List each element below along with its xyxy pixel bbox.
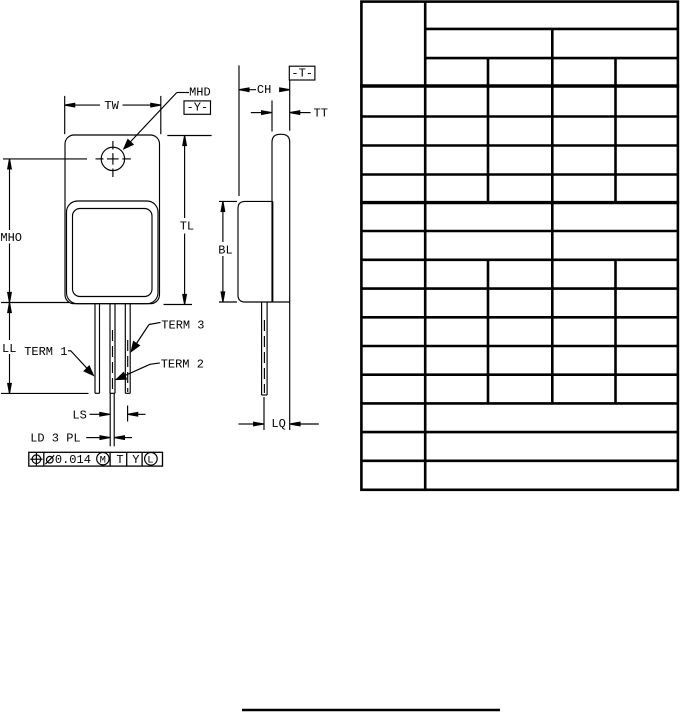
svg-text:MHO: MHO bbox=[0, 231, 22, 245]
svg-text:MHD: MHD bbox=[189, 86, 211, 100]
svg-text:L: L bbox=[147, 455, 153, 467]
svg-text:TW: TW bbox=[104, 99, 119, 113]
svg-text:LQ: LQ bbox=[271, 417, 285, 431]
svg-text:TERM 1: TERM 1 bbox=[24, 345, 67, 359]
svg-text:-Y-: -Y- bbox=[187, 101, 209, 115]
svg-text:TERM 3: TERM 3 bbox=[161, 319, 204, 333]
svg-text:Y: Y bbox=[132, 453, 139, 467]
svg-text:-T-: -T- bbox=[291, 67, 313, 81]
svg-text:LL: LL bbox=[2, 342, 16, 356]
svg-text:CH: CH bbox=[257, 83, 271, 97]
svg-text:0.014: 0.014 bbox=[55, 453, 91, 467]
svg-text:BL: BL bbox=[218, 243, 232, 257]
svg-text:M: M bbox=[100, 455, 106, 467]
svg-text:T: T bbox=[116, 453, 123, 467]
svg-text:LD 3 PL: LD 3 PL bbox=[30, 432, 80, 446]
svg-text:TERM 2: TERM 2 bbox=[161, 357, 204, 371]
svg-text:TT: TT bbox=[314, 107, 328, 121]
svg-text:TL: TL bbox=[180, 220, 194, 234]
svg-text:LS: LS bbox=[72, 408, 86, 422]
